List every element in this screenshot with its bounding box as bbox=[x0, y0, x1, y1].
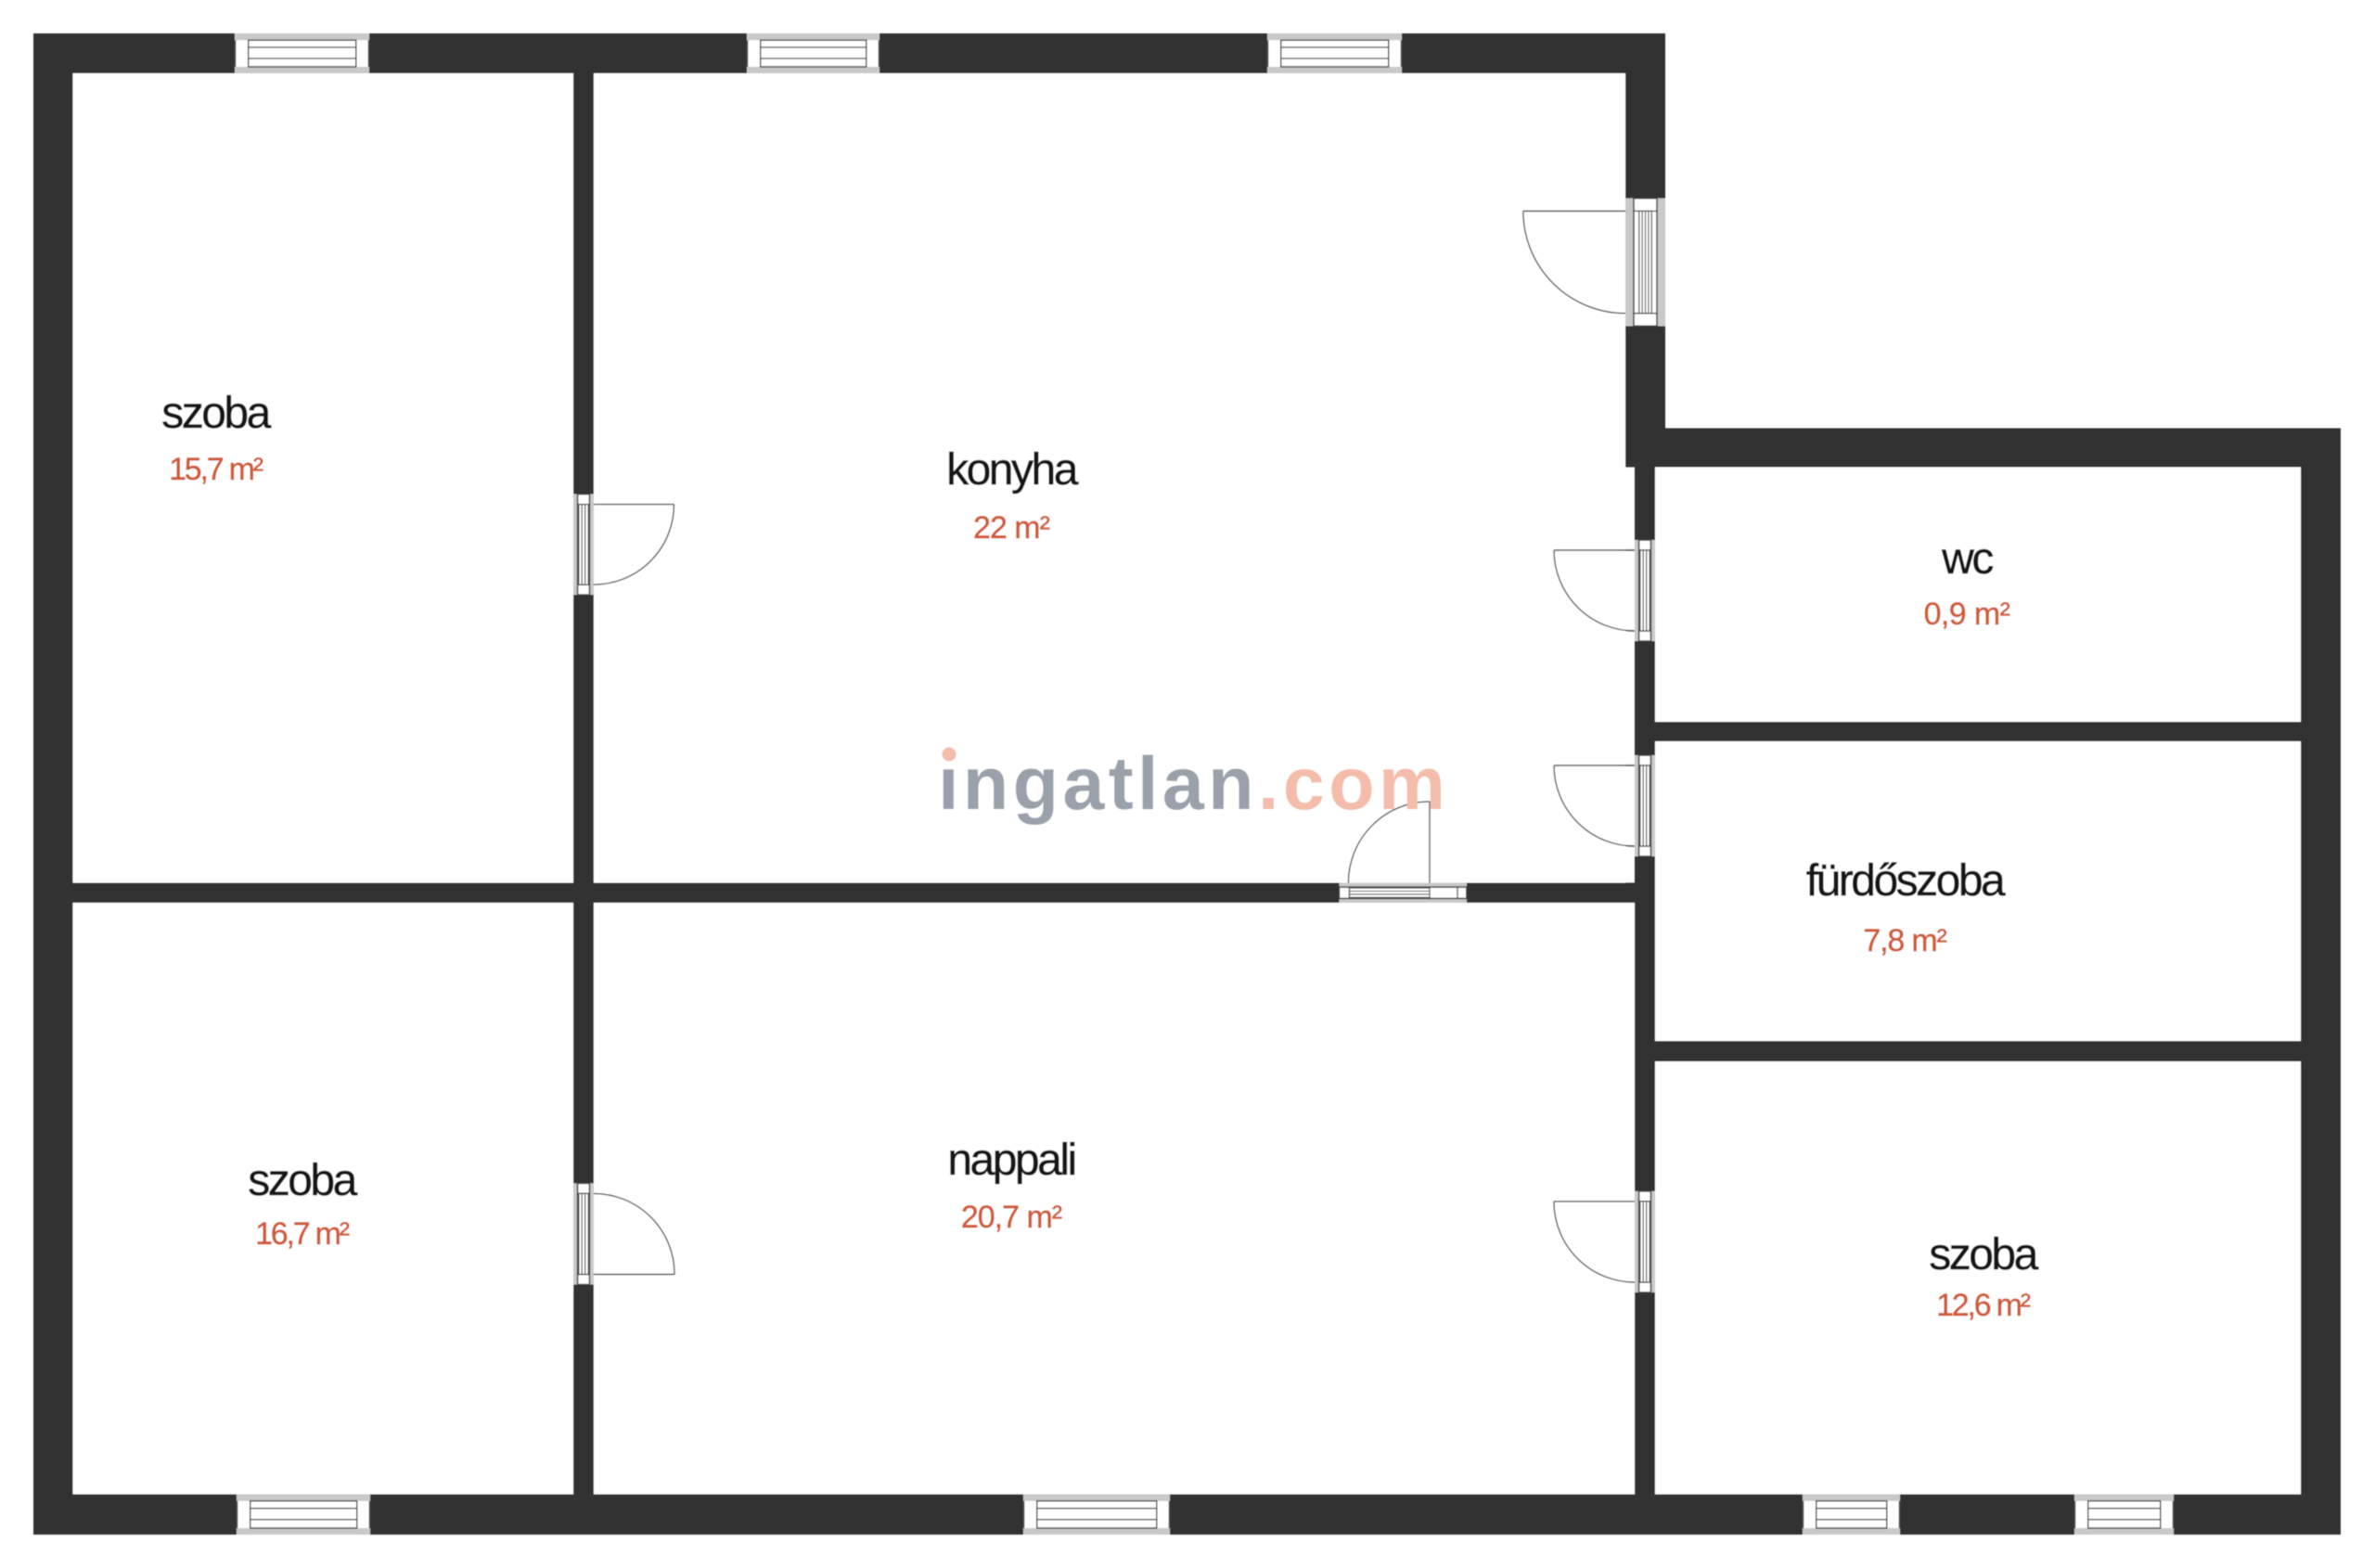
svg-text:16,7 m²: 16,7 m² bbox=[255, 1216, 350, 1252]
svg-text:szoba: szoba bbox=[248, 1156, 357, 1205]
svg-text:0,9 m²: 0,9 m² bbox=[1924, 597, 2010, 632]
svg-text:22 m²: 22 m² bbox=[973, 510, 1050, 546]
svg-text:wc: wc bbox=[1941, 534, 1993, 584]
svg-text:konyha: konyha bbox=[946, 445, 1079, 495]
svg-text:15,7 m²: 15,7 m² bbox=[169, 452, 263, 487]
svg-text:12,6 m²: 12,6 m² bbox=[1936, 1288, 2031, 1323]
svg-text:7,8 m²: 7,8 m² bbox=[1863, 923, 1946, 958]
svg-text:szoba: szoba bbox=[161, 389, 271, 438]
svg-text:ıngatlan.com: ıngatlan.com bbox=[938, 742, 1449, 826]
svg-text:szoba: szoba bbox=[1929, 1230, 2038, 1279]
svg-text:fürdőszoba: fürdőszoba bbox=[1806, 856, 2006, 906]
svg-text:20,7 m²: 20,7 m² bbox=[961, 1200, 1062, 1235]
svg-text:nappali: nappali bbox=[947, 1136, 1074, 1185]
